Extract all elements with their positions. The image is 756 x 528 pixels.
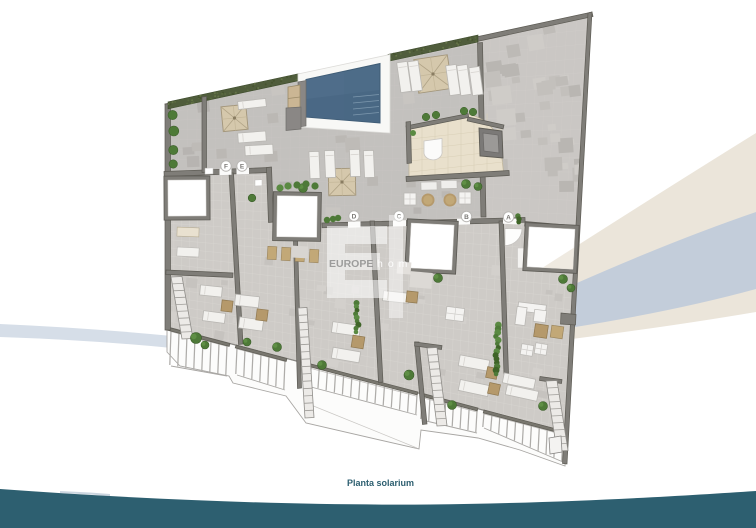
- svg-text:A: A: [506, 214, 511, 221]
- svg-text:E: E: [240, 163, 245, 170]
- svg-text:F: F: [224, 163, 228, 170]
- svg-text:Planta solarium: Planta solarium: [347, 478, 414, 488]
- svg-text:EUROPE: EUROPE: [329, 258, 373, 270]
- svg-text:D: D: [352, 213, 357, 220]
- svg-text:hom: hom: [377, 258, 412, 270]
- svg-text:B: B: [464, 214, 469, 221]
